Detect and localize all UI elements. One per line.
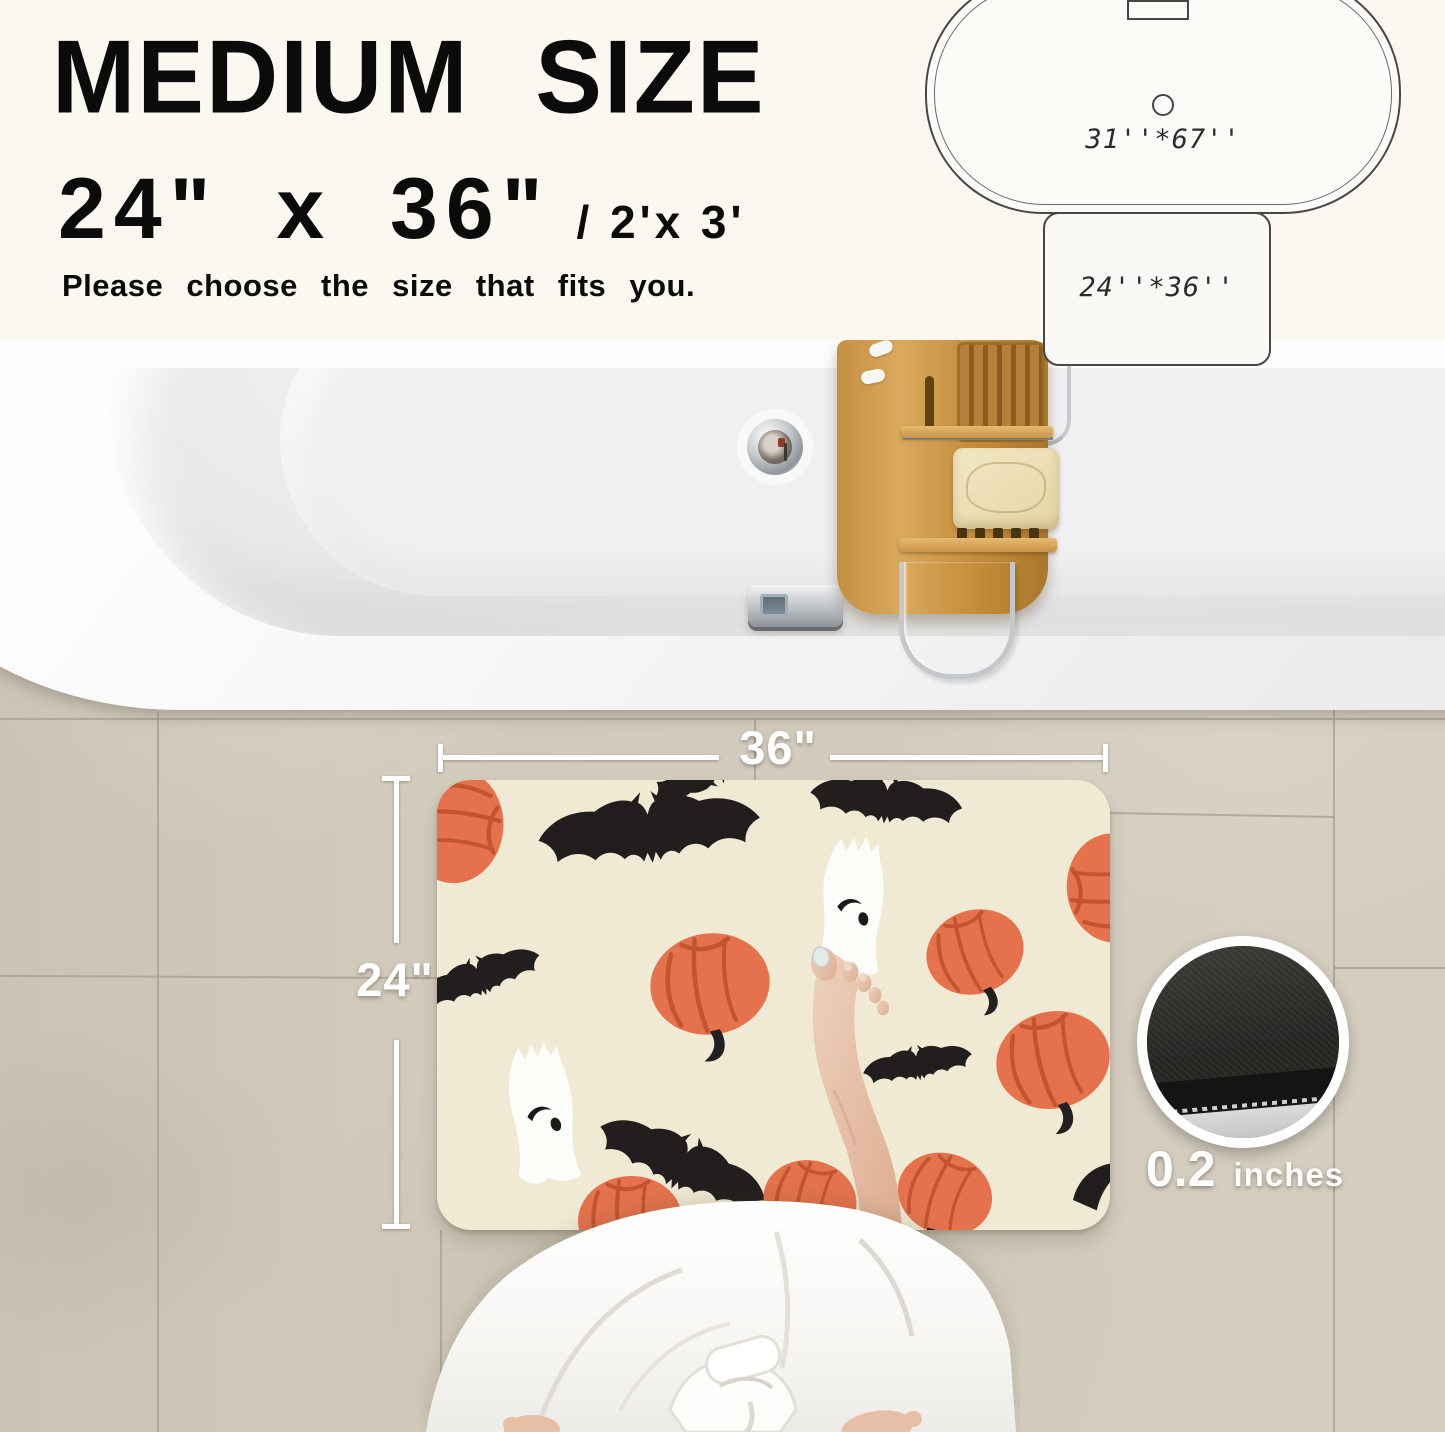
- toe: [869, 987, 882, 1003]
- bat-wing-icon: [1068, 1160, 1110, 1214]
- width-dimension-label: 36": [712, 720, 844, 775]
- thickness-label: 0.2 inches: [1146, 1140, 1344, 1198]
- mat-outline-diagram: 24''*36'': [1043, 212, 1271, 366]
- pumpkin-icon: [1062, 828, 1110, 947]
- drain-stopper-button: [760, 594, 788, 617]
- header: MEDIUM SIZE 24" x 36" / 2'x 3' Please ch…: [0, 0, 1445, 340]
- caddy-extendable-rail: [899, 562, 1015, 679]
- size-primary-label: 24" x 36": [58, 160, 550, 259]
- overflow-drain-core: [758, 430, 792, 464]
- bat-icon: [808, 780, 965, 831]
- thickness-value: 0.2: [1146, 1140, 1216, 1198]
- grout-line: [1334, 967, 1445, 969]
- pumpkin-icon: [437, 780, 508, 887]
- left-hand-finger: [503, 1417, 521, 1431]
- caddy-rail: [901, 426, 1053, 438]
- height-dimension-tick: [382, 1224, 410, 1229]
- right-hand-thumb: [904, 1411, 922, 1427]
- person: [420, 940, 1020, 1432]
- toenail: [860, 973, 867, 982]
- page-title: MEDIUM SIZE: [52, 18, 766, 138]
- drain-stopper-control: [748, 585, 843, 627]
- bathroom-photo: 36" 24": [0, 340, 1445, 1432]
- bat-icon: [535, 780, 764, 874]
- soap-emboss: [966, 462, 1046, 513]
- bathtub-size-label: 31''*67'': [927, 124, 1399, 155]
- soap-bar: [953, 448, 1059, 529]
- width-dimension-tick: [1103, 744, 1108, 772]
- height-dimension-line: [394, 781, 399, 943]
- size-secondary-label: / 2'x 3': [576, 195, 745, 249]
- size-line: 24" x 36" / 2'x 3': [58, 160, 745, 259]
- bathtub-outline-diagram: 31''*67'': [925, 0, 1401, 214]
- thickness-zoom-circle: [1137, 936, 1349, 1148]
- mat-size-label: 24''*36'': [1045, 272, 1269, 303]
- subtitle: Please choose the size that fits you.: [62, 268, 695, 304]
- mat-top-fabric-layer: [1137, 936, 1349, 1085]
- bathrobe: [426, 1201, 1016, 1432]
- toe: [877, 1001, 889, 1016]
- drain-lever: [784, 443, 787, 461]
- product-image: MEDIUM SIZE 24" x 36" / 2'x 3' Please ch…: [0, 0, 1445, 1432]
- mat-cross-section: [1137, 936, 1349, 1148]
- caddy-rail: [899, 538, 1057, 552]
- grout-line: [157, 712, 159, 1432]
- thickness-unit: inches: [1234, 1156, 1345, 1194]
- height-dimension-line: [394, 1040, 399, 1226]
- bathtub-faucet-notch: [1127, 0, 1189, 20]
- width-dimension-line: [443, 755, 719, 760]
- toenail: [844, 961, 852, 971]
- bamboo-bath-caddy: [835, 340, 1067, 700]
- width-dimension-line: [830, 755, 1104, 760]
- overflow-drain: [747, 419, 803, 475]
- leg-and-foot: [808, 945, 902, 1230]
- bathtub: [0, 340, 1445, 710]
- bathtub-drain-dot: [1152, 94, 1174, 116]
